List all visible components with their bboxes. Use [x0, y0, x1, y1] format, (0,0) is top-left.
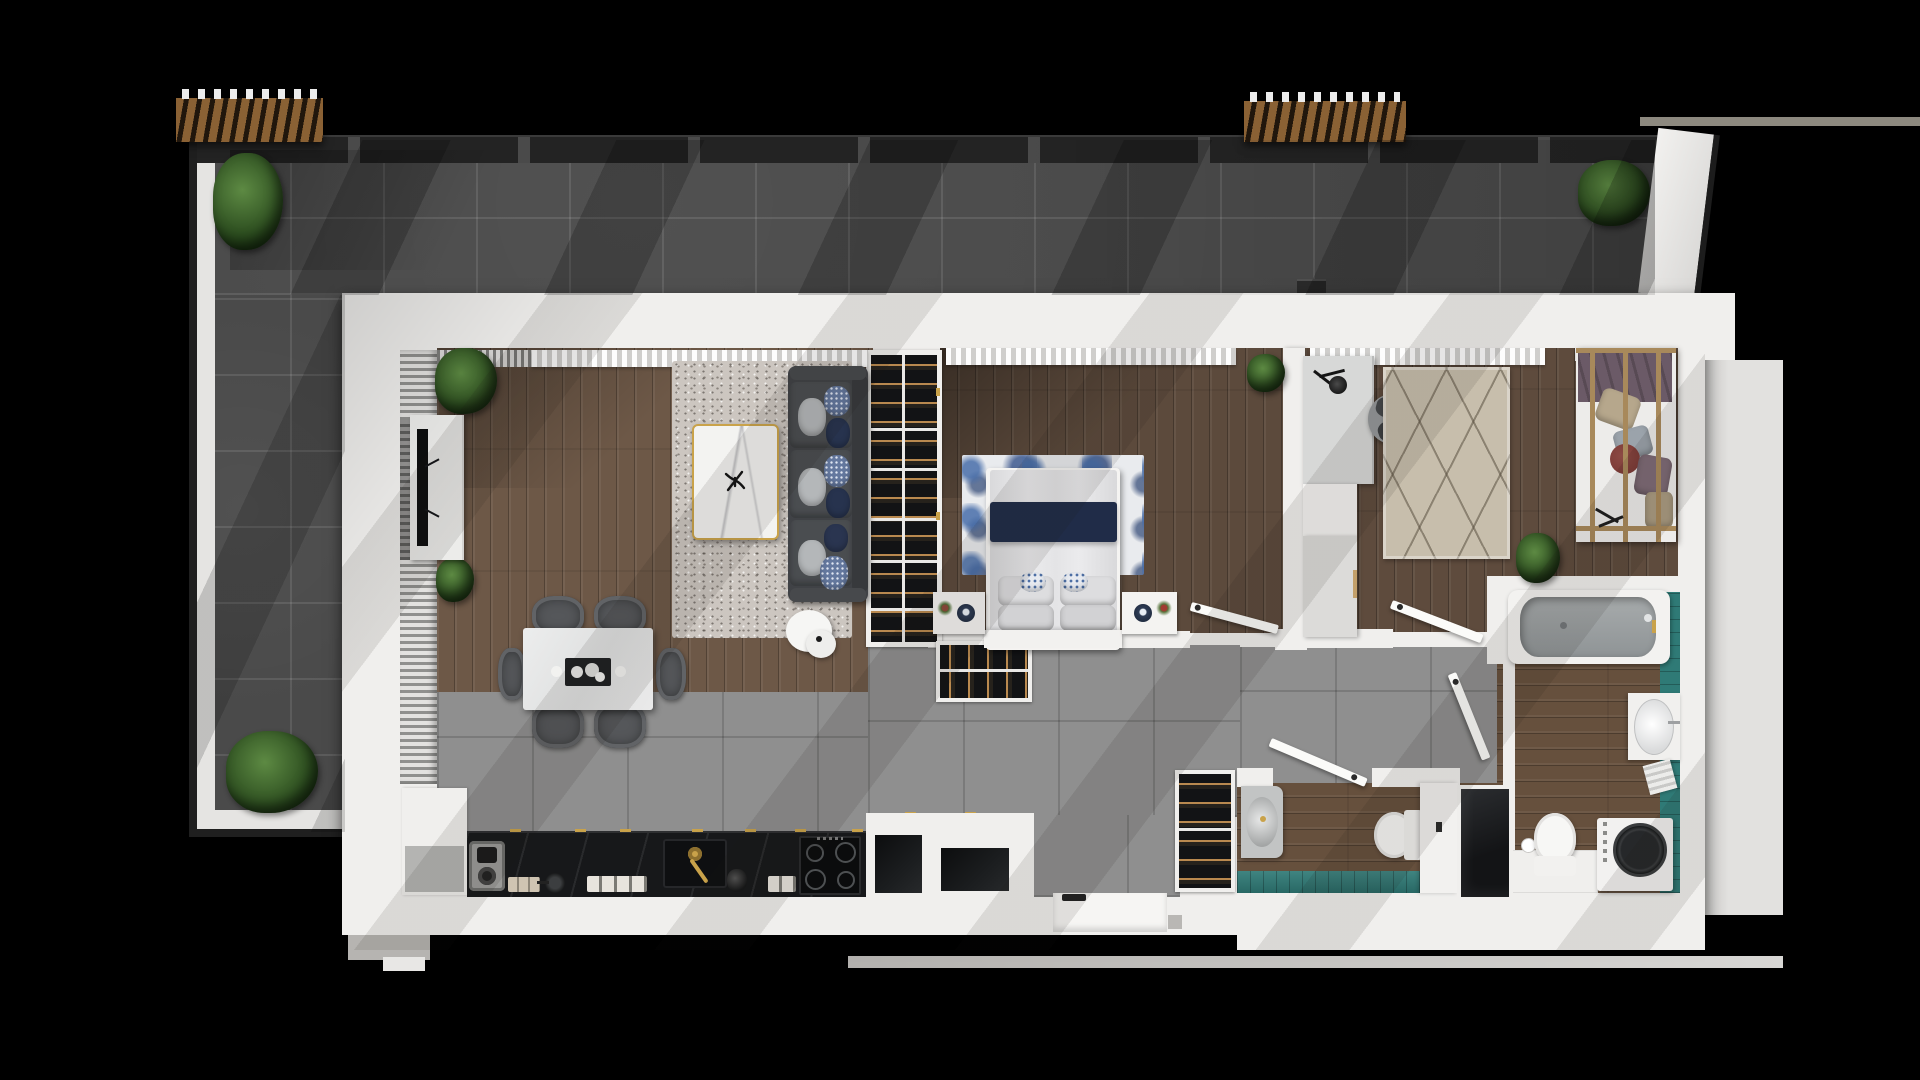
canister-set — [587, 876, 647, 892]
wardrobe-knob — [936, 512, 940, 520]
place-plate — [615, 666, 626, 677]
wc-sink-basin — [1246, 797, 1278, 847]
exterior-ledge-bottom — [848, 956, 1783, 968]
coffee-machine-icon — [469, 841, 505, 891]
bathtub-drain — [1560, 622, 1567, 629]
side-table-small — [806, 630, 836, 658]
wall-between-bedrooms — [1283, 348, 1305, 638]
door-handle — [1452, 678, 1460, 686]
coffee-table — [692, 424, 779, 540]
sofa-arm — [790, 588, 866, 602]
nightstand — [1122, 592, 1177, 634]
cabinet-handle — [575, 829, 586, 832]
kitchen-cabinet-left — [402, 788, 467, 895]
daybed-frame-rail — [1576, 348, 1676, 353]
cabinet-handle — [692, 829, 703, 832]
cabinet-handle — [852, 829, 863, 832]
cooktop-controls — [817, 837, 843, 840]
pillow-blue-pattern — [824, 455, 850, 487]
washer-drum-icon — [1613, 823, 1667, 877]
burner — [835, 842, 856, 863]
curtain-bedroom1 — [946, 348, 1236, 365]
pillow-navy — [826, 488, 850, 518]
pillow-blue-pattern — [820, 556, 848, 590]
dish — [571, 666, 583, 678]
closet-entry — [1175, 770, 1235, 892]
pan-handle — [537, 881, 549, 884]
bed-headboard — [984, 630, 1122, 648]
exterior-slab-right — [1705, 360, 1783, 915]
wardrobe-bedroom1 — [866, 350, 942, 647]
pillow-navy — [824, 524, 848, 552]
bed-runner-navy — [990, 502, 1117, 542]
neighbor-slab-edge — [1640, 117, 1920, 126]
cooktop-icon — [799, 836, 861, 895]
wardrobe-shelf — [871, 428, 937, 431]
table-decor-icon — [722, 468, 748, 494]
bath-vanity — [1628, 693, 1680, 760]
side-table-knob — [816, 636, 822, 642]
cabinet-wood-edge — [1353, 570, 1357, 598]
bath-sink-basin — [1634, 699, 1674, 755]
wardrobe-knob — [936, 388, 940, 396]
cabinet-handle — [745, 829, 756, 832]
pillow-gray — [798, 398, 826, 436]
daybed-frame-slat — [1623, 348, 1628, 542]
place-plate — [551, 666, 562, 677]
bath-toilet-tank — [1534, 856, 1576, 876]
bathtub-basin — [1520, 597, 1656, 657]
terrace-tiles-top — [197, 140, 1655, 295]
bath-sink-faucet — [1668, 721, 1680, 724]
bed-pillow — [1060, 605, 1116, 631]
bed-pillow — [998, 605, 1054, 631]
wardrobe-divider — [902, 355, 905, 642]
bathtub-tap — [1652, 620, 1656, 633]
plant-sprig-icon — [937, 600, 953, 616]
bedroom2-cabinet-low — [1303, 536, 1357, 637]
wardrobe-shelf — [871, 560, 937, 563]
table-lamp-icon — [957, 604, 975, 622]
terrace-railing-bottom — [189, 829, 347, 837]
tv-icon — [417, 429, 428, 546]
wall-wc-north-a — [1237, 768, 1273, 787]
dining-chair — [656, 648, 686, 700]
wardrobe-shelf — [871, 518, 937, 521]
bedroom2-rug — [1383, 367, 1510, 559]
door-handle — [1396, 603, 1404, 611]
canister-set — [508, 877, 540, 892]
coffee-machine-detail — [478, 867, 496, 885]
closet-interior — [1179, 774, 1231, 888]
pillow-navy — [826, 418, 850, 448]
closet-hallway — [936, 641, 1032, 702]
floor-entry — [1032, 815, 1180, 897]
bed-pillow-floral — [1020, 572, 1046, 592]
pergola-right — [1244, 101, 1406, 142]
sofa-backrest — [852, 376, 868, 592]
closet-divider — [1179, 828, 1231, 831]
entrance-door — [1053, 893, 1167, 932]
terrace-railing-top — [190, 135, 1702, 163]
washer-controls — [1603, 822, 1607, 862]
nightstand — [933, 592, 985, 634]
terrace-ledge-left — [197, 143, 215, 832]
wc-sink-faucet — [1260, 816, 1266, 822]
wc-tall-cabinet — [1420, 783, 1458, 893]
wc-shower — [1457, 785, 1513, 901]
wardrobe-shelf — [871, 608, 937, 611]
pergola-left — [176, 98, 323, 142]
dish — [595, 672, 605, 682]
facade-block — [866, 813, 1034, 897]
pillow-gray — [798, 468, 826, 506]
desk-lamp-icon — [1329, 376, 1347, 394]
wall-step-white — [383, 957, 425, 971]
daybed-frame-rail — [1576, 526, 1676, 531]
kitchen-counter — [467, 831, 868, 897]
dark-glass-panel — [941, 848, 1009, 891]
floor-plan-render — [0, 0, 1920, 1080]
dark-glass-panel — [875, 835, 922, 893]
entrance-threshold — [1168, 915, 1182, 929]
bedroom2-cabinet — [1303, 484, 1357, 536]
dining-table — [523, 628, 653, 710]
dining-chair — [498, 648, 526, 700]
floor-kitchen — [437, 692, 868, 833]
sofa — [788, 366, 868, 602]
table-lamp-icon — [1134, 604, 1152, 622]
cabinet-handle — [620, 829, 631, 832]
cabinet-handle — [510, 829, 521, 832]
canister-set — [768, 876, 796, 892]
daybed — [1576, 348, 1676, 542]
door-handle — [1194, 604, 1201, 611]
cabinet-handle-dark — [1436, 822, 1442, 832]
bathtub-faucet-icon — [1644, 614, 1652, 622]
flower-sprig-icon — [1156, 600, 1172, 616]
bathtub — [1508, 590, 1670, 664]
coffee-machine-detail — [477, 847, 497, 863]
sofa-arm — [790, 366, 866, 380]
serving-tray — [565, 658, 611, 686]
door-handle — [1350, 773, 1358, 781]
burner — [837, 871, 855, 889]
wardrobe-shelf — [871, 468, 937, 471]
floor-corridor-east — [1240, 647, 1500, 787]
daybed-frame-slat — [1590, 348, 1595, 542]
washing-machine — [1597, 818, 1673, 891]
wc-vanity — [1241, 786, 1283, 858]
cabinet-handle — [795, 829, 806, 832]
pillow-blue-pattern — [824, 386, 850, 416]
entrance-door-handle — [1062, 894, 1086, 901]
kettle-icon — [727, 869, 747, 892]
desk — [1303, 356, 1374, 484]
burner — [805, 869, 826, 890]
daybed-frame-slat — [1656, 348, 1661, 542]
bed-pillow-floral — [1062, 572, 1088, 592]
closet-divider — [940, 669, 1028, 672]
burner — [806, 844, 824, 862]
wall-top-right-ext — [1705, 293, 1735, 360]
kitchen-cabinet-front — [405, 846, 464, 892]
terrace-railing-left — [189, 135, 197, 837]
wall-bottom-right — [1237, 893, 1705, 950]
